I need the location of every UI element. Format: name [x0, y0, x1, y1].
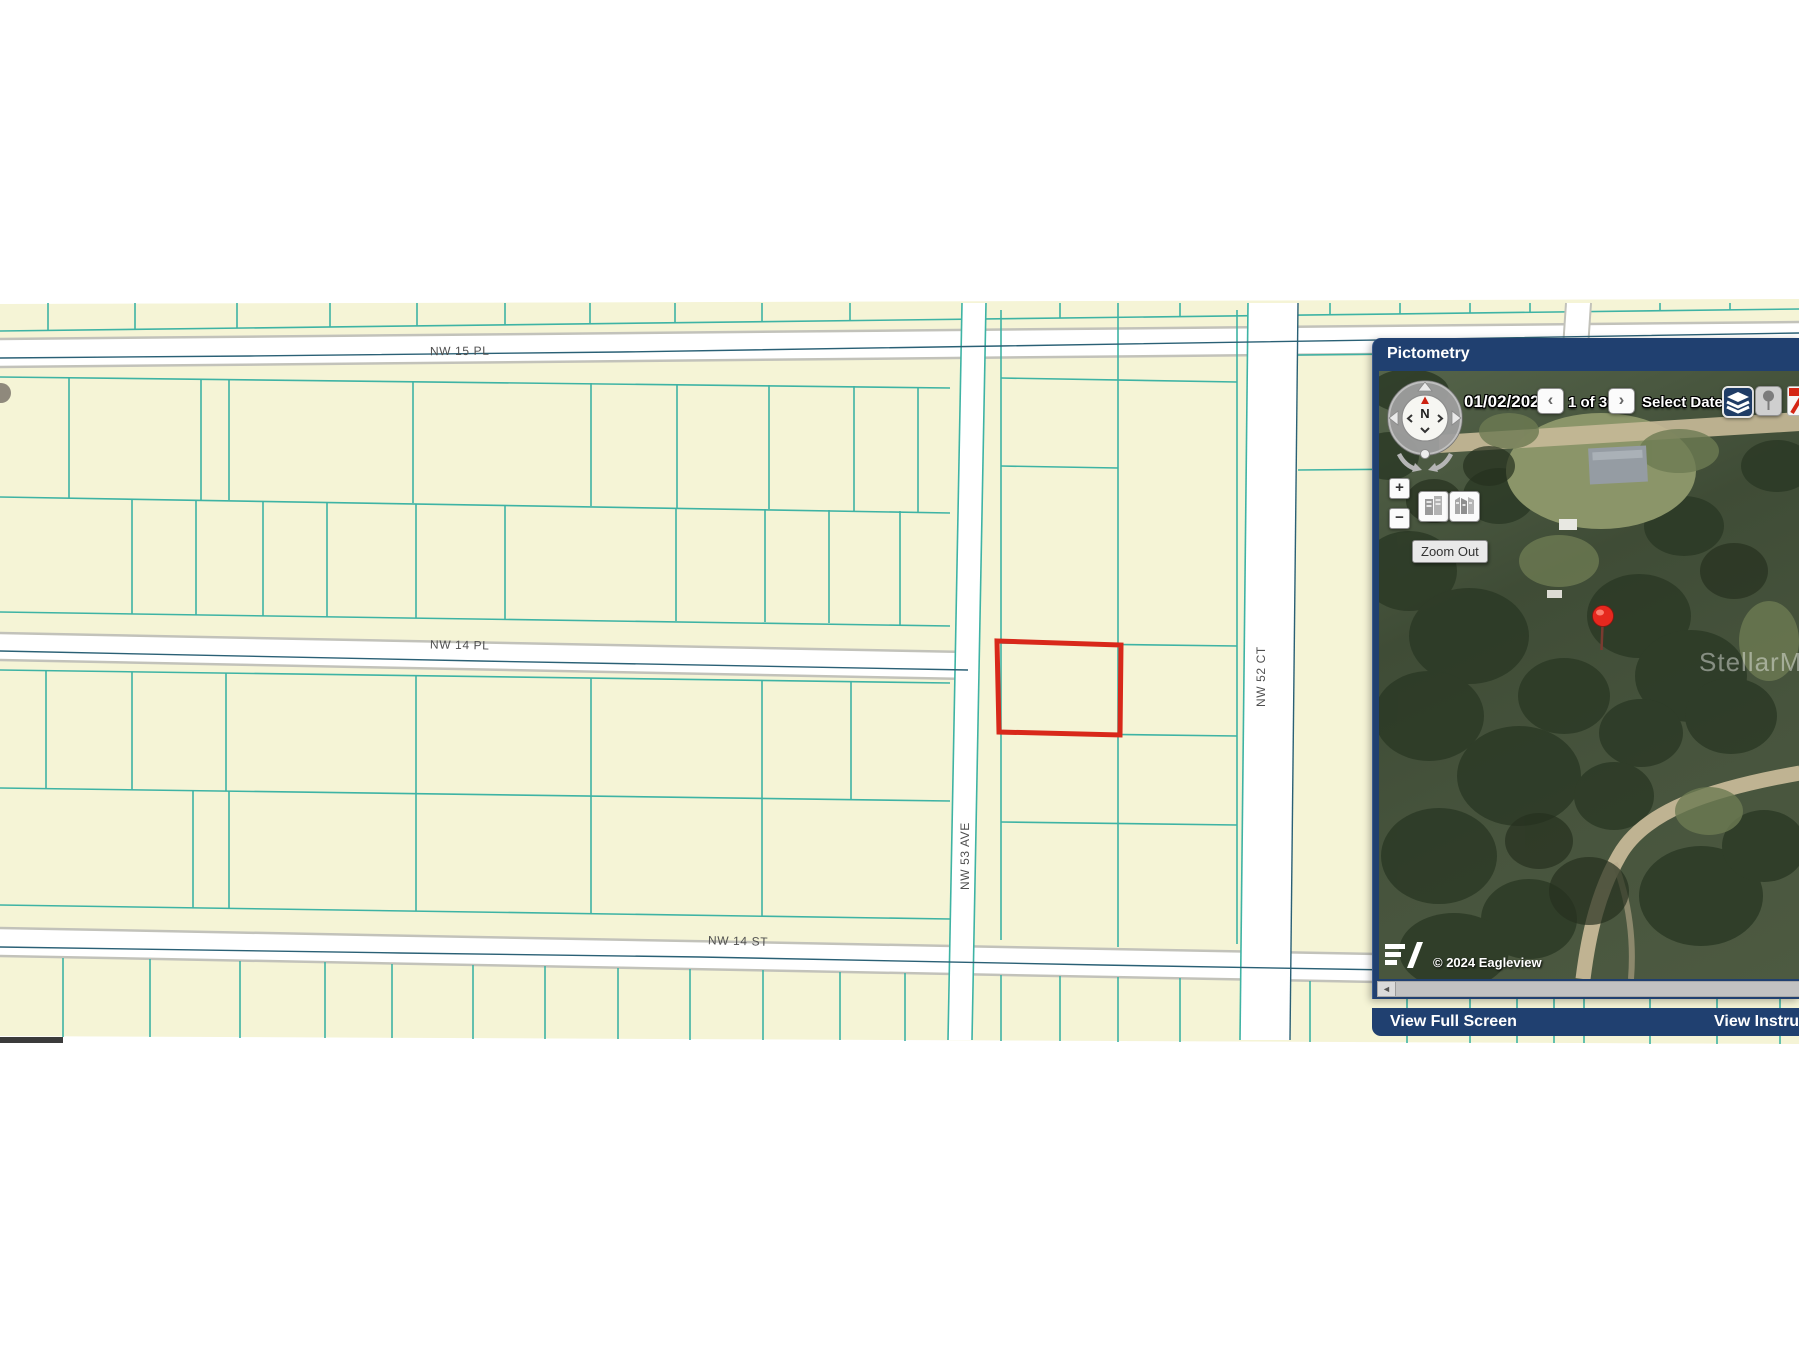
oblique-view-button[interactable] [1449, 491, 1480, 522]
zoom-out-button[interactable]: − [1389, 508, 1410, 529]
ortho-view-button[interactable] [1418, 491, 1449, 522]
street-label-nw-52-ct: NW 52 CT [1254, 647, 1268, 707]
pdf-icon [1788, 387, 1799, 415]
vehicle [1547, 590, 1562, 598]
eagleview-logo [1383, 940, 1425, 972]
pictometry-footer: View Full Screen View Instruc [1372, 1008, 1799, 1036]
street-label-nw-14-st: NW 14 ST [708, 933, 769, 949]
horizontal-scrollbar[interactable]: ◄ [1377, 981, 1799, 997]
layers-icon [1724, 388, 1752, 416]
layers-button[interactable] [1722, 386, 1754, 418]
pushpin-icon [1756, 387, 1781, 415]
pdf-export-button[interactable] [1787, 386, 1799, 416]
pictometry-titlebar[interactable]: Pictometry [1373, 338, 1799, 370]
next-image-button[interactable]: › [1608, 388, 1635, 414]
location-pin-icon [1591, 603, 1615, 653]
aerial-photo-viewport[interactable]: N 01/02/2024 ‹ 1 of 30 › Select Date ▾ [1379, 371, 1799, 979]
view-instructions-link[interactable]: View Instruc [1714, 1013, 1799, 1031]
prev-image-button[interactable]: ‹ [1537, 388, 1564, 414]
building-icon [1420, 492, 1447, 519]
compass-rose[interactable]: N [1385, 378, 1465, 472]
scrollbar-left-arrow[interactable]: ◄ [1378, 982, 1395, 996]
zoom-out-tooltip: Zoom Out [1412, 540, 1488, 563]
pushpin-button[interactable] [1755, 386, 1782, 416]
street-label-nw-53-ave: NW 53 AVE [958, 830, 972, 890]
shed [1559, 519, 1577, 530]
pictometry-title: Pictometry [1387, 345, 1470, 362]
svg-text:N: N [1420, 406, 1429, 421]
view-full-screen-link[interactable]: View Full Screen [1390, 1013, 1517, 1031]
stellar-mls-watermark: StellarMLS [1699, 647, 1799, 678]
street-nw52ct [1240, 303, 1298, 1040]
zoom-in-button[interactable]: + [1389, 478, 1410, 499]
select-date-label: Select Date [1642, 394, 1723, 411]
pictometry-window: Pictometry [1372, 338, 1799, 999]
scrollbar-thumb[interactable] [1395, 982, 1799, 996]
scale-bar [0, 1037, 63, 1043]
page: { "map": { "streets": [ {"label": "NW 15… [0, 0, 1799, 1349]
select-date-dropdown[interactable]: Select Date ▾ [1642, 394, 1733, 412]
pictometry-panel: Pictometry [1372, 338, 1799, 1036]
street-label-nw-15-pl: NW 15 PL [430, 344, 490, 359]
buildings-oblique-icon [1451, 492, 1478, 519]
street-label-nw-14-pl: NW 14 PL [430, 637, 490, 652]
eagleview-copyright: © 2024 Eagleview [1433, 955, 1542, 970]
